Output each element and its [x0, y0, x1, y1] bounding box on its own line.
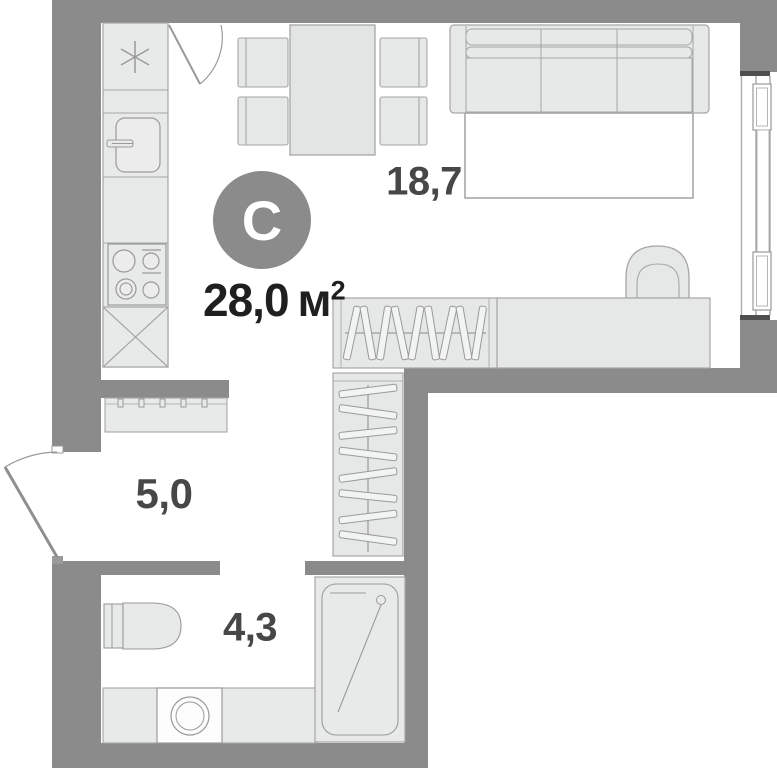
bathroom-area-label: 4,3	[223, 606, 277, 651]
total-area-label: 28,0м2	[203, 277, 346, 323]
dining-chair	[238, 38, 288, 87]
bathtub	[315, 577, 405, 742]
wall-bottom	[52, 743, 428, 768]
interior-door	[169, 25, 222, 84]
total-area-value: 28,0	[203, 274, 289, 326]
wall-right-top	[740, 0, 777, 72]
hall-coat-rack	[105, 398, 227, 432]
hallway-area-label: 5,0	[136, 470, 193, 518]
toilet	[104, 603, 181, 649]
unit-type-letter: С	[242, 188, 282, 253]
wardrobe-hangers-horizontal	[333, 298, 497, 368]
desk-chair	[626, 246, 689, 298]
wall-bathroom-top-left	[52, 561, 220, 575]
sofa	[450, 25, 709, 113]
washing-machine	[157, 688, 222, 743]
wall-top	[52, 0, 740, 23]
dining-chair	[238, 97, 288, 145]
dining-table	[290, 25, 375, 155]
window	[740, 71, 777, 320]
window-mullion-middle	[757, 130, 769, 252]
living-room-area-label: 18,7	[386, 160, 462, 205]
wall-mid-vertical	[404, 368, 428, 768]
window-casement-top	[753, 84, 771, 130]
floor-plan: С 28,0м2 18,7 5,0 4,3	[0, 0, 777, 768]
wall-right-bottom	[740, 320, 777, 393]
dining-chair	[380, 97, 427, 145]
total-area-unit: м2	[298, 274, 346, 326]
door-leaf	[5, 467, 57, 557]
window-sill-cap-top	[740, 71, 770, 76]
wall-hallway-top	[52, 380, 229, 398]
dining-chair	[380, 38, 427, 87]
kitchen-cabinet-x	[103, 307, 168, 367]
window-casement-bottom	[753, 252, 771, 310]
wall-left-lower	[52, 563, 101, 768]
wardrobe-hangers-tall	[333, 373, 403, 556]
floor-plan-graphics	[0, 0, 777, 768]
entrance-door	[5, 446, 63, 564]
kitchen-stove	[108, 244, 166, 305]
unit-type-badge: С	[213, 171, 311, 269]
desk	[497, 298, 710, 368]
wall-mainroom-bottom	[404, 368, 740, 393]
sofa-bed-outline	[465, 113, 693, 198]
window-sill-cap-bottom	[740, 315, 770, 320]
door-jamb-bottom	[52, 556, 63, 564]
door-swing-arc	[5, 452, 57, 467]
